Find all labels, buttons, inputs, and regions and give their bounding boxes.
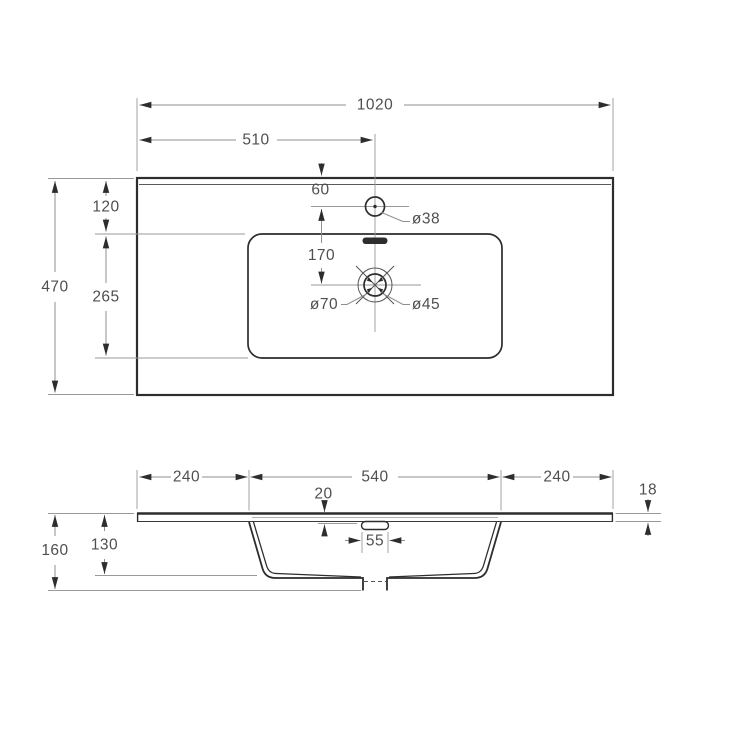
dim-back-to-basin: 120 [92, 181, 119, 232]
dim-overall-height: 160 [41, 515, 68, 589]
dim-label-170: 170 [308, 247, 335, 264]
dim-label-265: 265 [92, 289, 119, 306]
leader-line [384, 294, 411, 305]
bowl-outer-left [249, 522, 363, 591]
dim-overall-width: 1020 [140, 97, 611, 114]
leader-line [341, 294, 367, 305]
washbasin-technical-drawing: 1020 510 470 120 265 60 [0, 0, 750, 750]
dim-label-60: 60 [311, 182, 329, 199]
drawing-canvas: 1020 510 470 120 265 60 [0, 0, 750, 750]
top-view: 1020 510 470 120 265 60 [41, 97, 613, 396]
dim-center-width: 510 [140, 132, 373, 149]
dim-label-160: 160 [41, 542, 68, 559]
dim-slab-thickness: 18 [639, 482, 657, 537]
dim-label-240-left: 240 [173, 469, 200, 486]
overflow-slot-plan [363, 238, 388, 245]
dim-label-d38: ø38 [412, 211, 440, 228]
dim-left-deck: 240 [140, 469, 248, 486]
faucet-hole-center-dot [373, 205, 376, 208]
callout-drain-hole: ø45 [384, 294, 441, 313]
dim-label-240-right: 240 [543, 469, 570, 486]
callout-faucet-hole: ø38 [382, 211, 441, 228]
dim-label-130: 130 [91, 537, 118, 554]
section-view: 240 540 240 18 20 55 [41, 469, 661, 591]
dim-label-d45: ø45 [412, 296, 440, 313]
dim-basin-width: 540 [251, 469, 500, 486]
dim-faucet-offset: 60 [311, 163, 329, 199]
dim-label-1020: 1020 [357, 97, 393, 114]
callout-drain-outer: ø70 [310, 294, 367, 313]
dim-bowl-depth: 130 [91, 515, 118, 574]
dim-label-120: 120 [92, 199, 119, 216]
dim-label-d70: ø70 [310, 296, 338, 313]
bowl-outer-right [387, 522, 501, 591]
leader-line [382, 213, 411, 222]
dim-label-510: 510 [242, 132, 269, 149]
dim-overall-depth: 470 [41, 181, 68, 393]
dim-overflow-drop: 20 [314, 486, 332, 535]
dim-label-55: 55 [366, 533, 384, 550]
dim-label-20: 20 [314, 486, 332, 503]
bowl-inner-left [254, 522, 362, 577]
overflow-slot-section [362, 522, 389, 530]
dim-label-18: 18 [639, 482, 657, 499]
dim-overflow-width: 55 [345, 533, 405, 550]
dim-faucet-to-drain: 170 [308, 209, 335, 284]
bowl-inner-right [389, 522, 497, 577]
dim-label-470: 470 [41, 279, 68, 296]
dim-basin-depth: 265 [92, 237, 119, 356]
dim-label-540: 540 [361, 469, 388, 486]
dim-right-deck: 240 [503, 469, 612, 486]
